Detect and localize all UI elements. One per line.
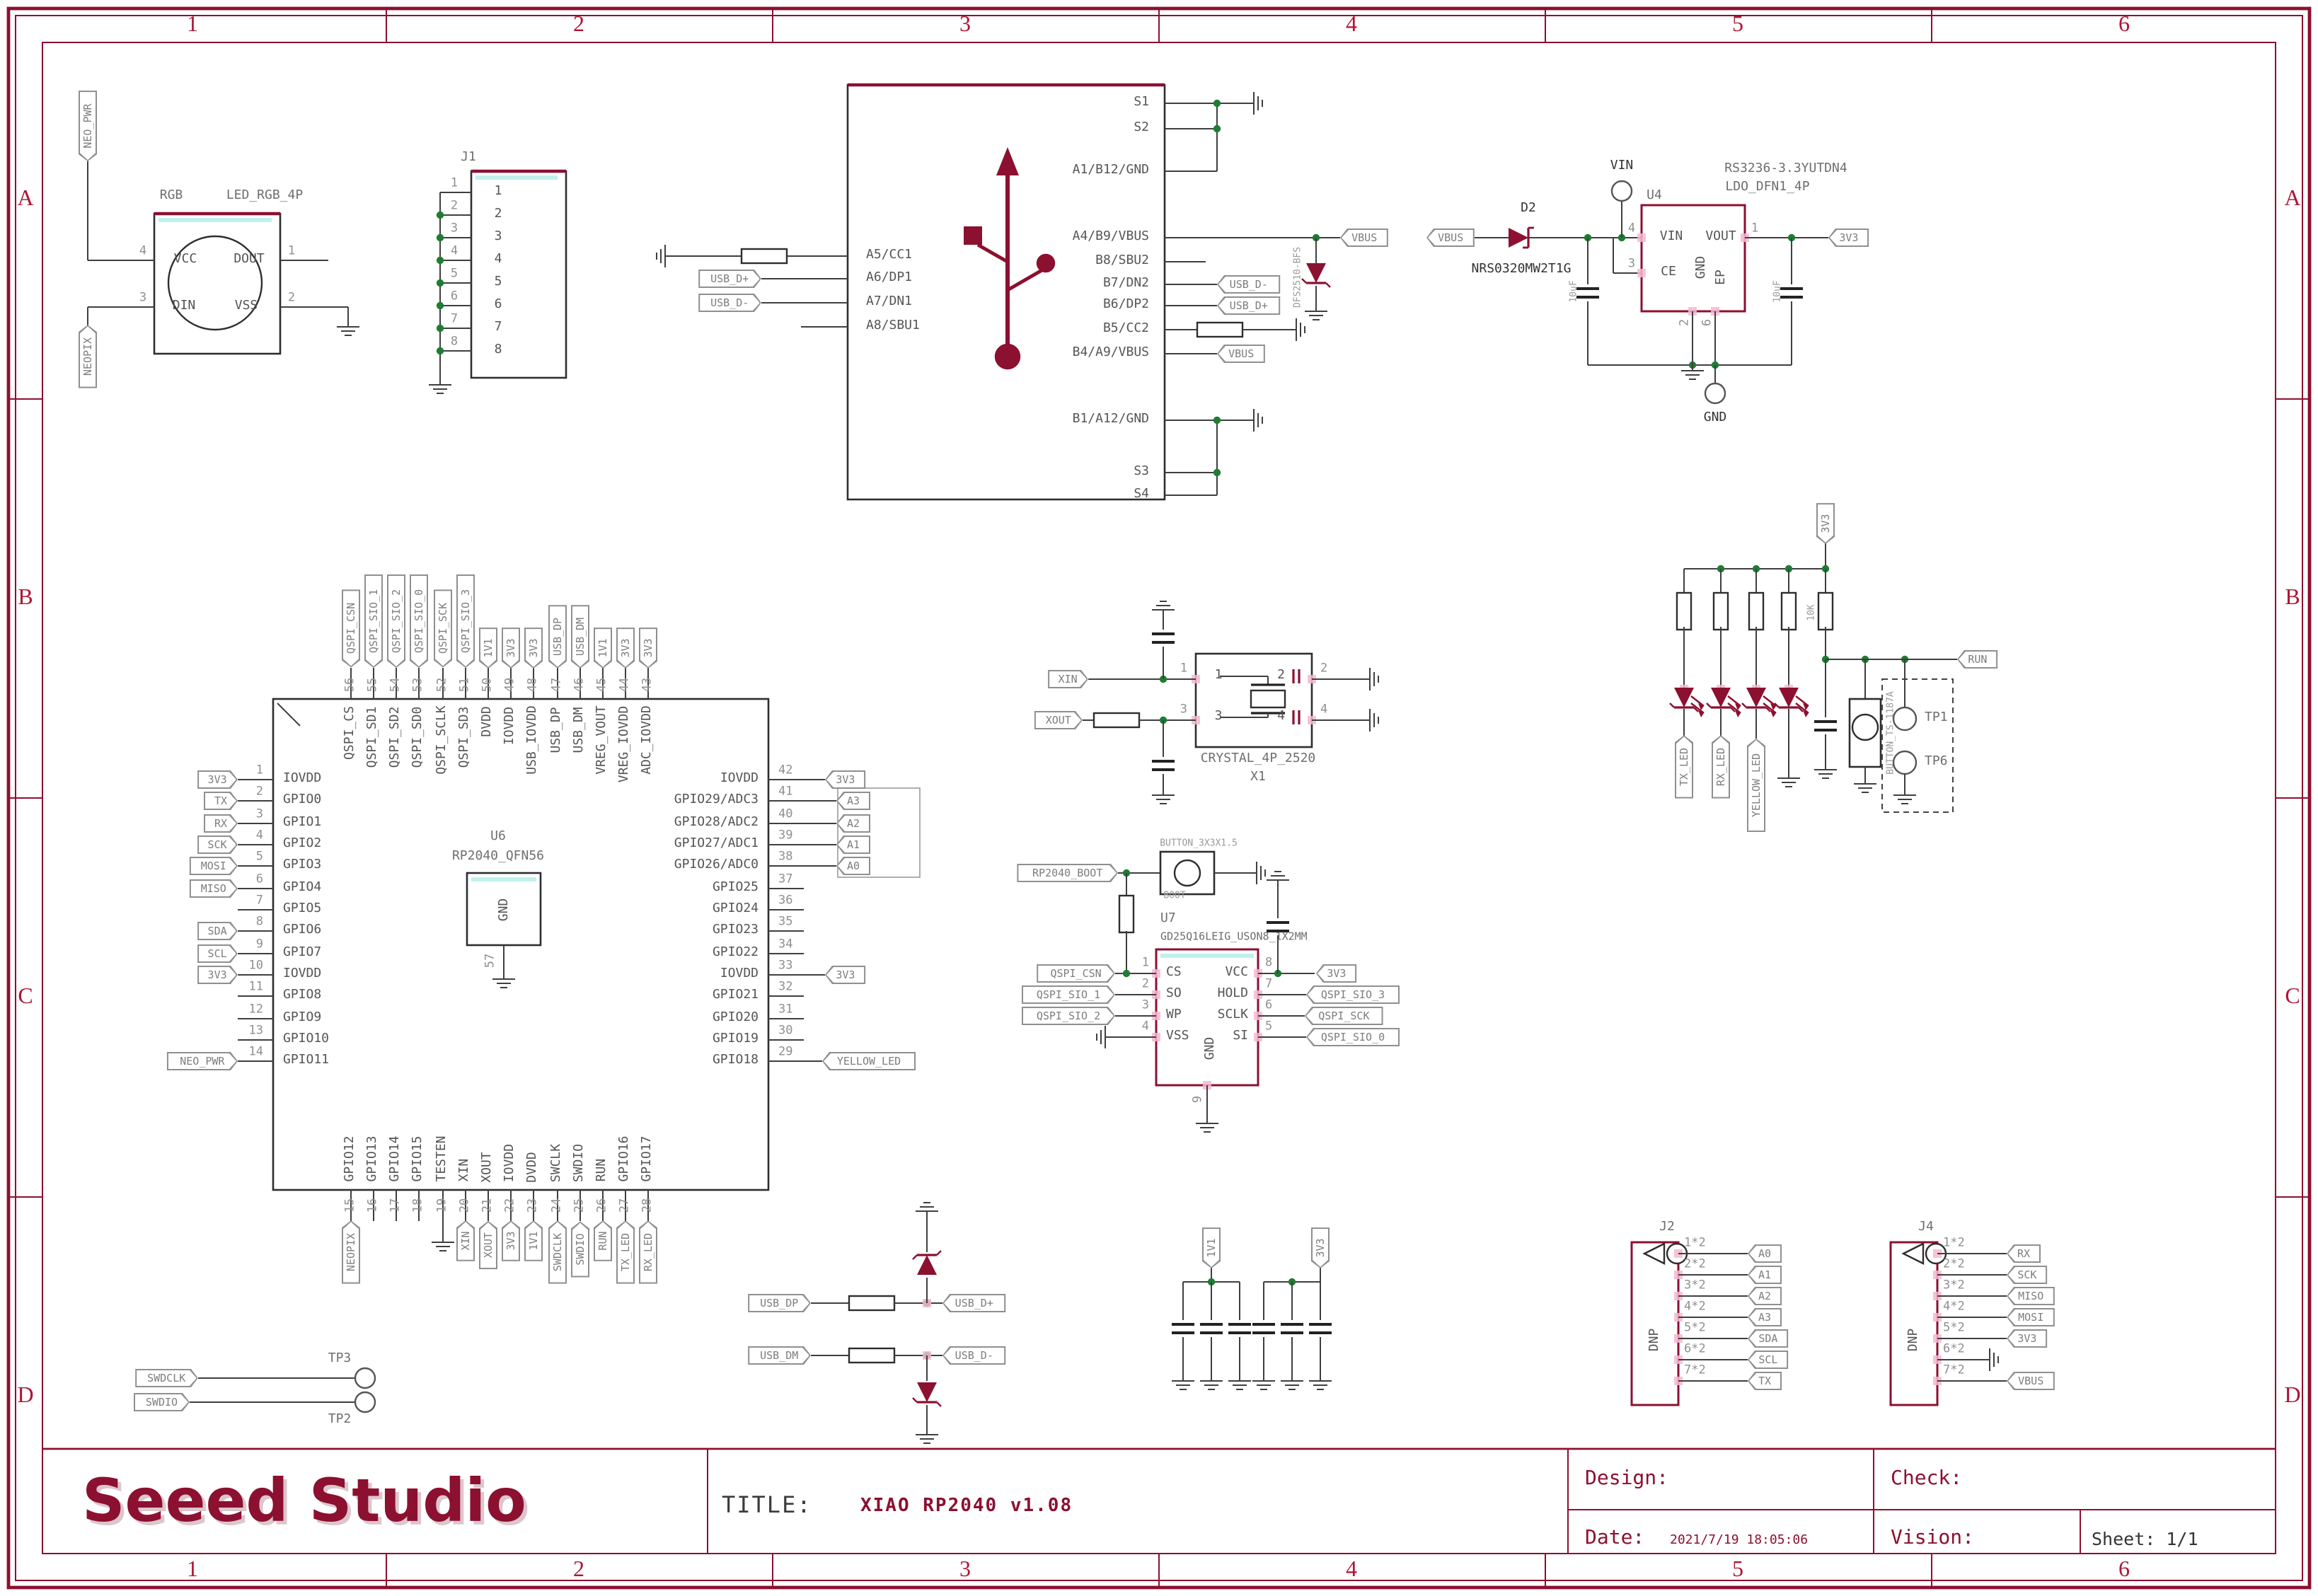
net-flag-YELLOW_LED: YELLOW_LED — [822, 1052, 916, 1070]
text-label: 37 — [778, 874, 793, 886]
text-label: 1 — [1142, 958, 1149, 970]
net-flag-SWDCLK: SWDCLK — [134, 1369, 198, 1387]
text-label: GPIO28/ADC2 — [674, 817, 759, 830]
text-label: WP — [1166, 1010, 1182, 1022]
text-label: 8 — [256, 917, 263, 929]
text-label: 12 — [249, 1005, 264, 1017]
net-flag-SCK: SCK — [2007, 1266, 2048, 1284]
cap-out-value: 10uF — [1773, 280, 1782, 302]
usb-pin-A8/SBU1: A8/SBU1 — [866, 320, 920, 333]
refdes-j2: J2 — [1659, 1222, 1675, 1234]
text-label: 4*2 — [1943, 1302, 1965, 1314]
component-body — [1818, 593, 1833, 630]
refdes-u4: U4 — [1647, 190, 1662, 203]
circle-symbol — [355, 1392, 375, 1412]
text-label: 36 — [778, 896, 793, 908]
net-flag-SWDIO: SWDIO — [571, 1221, 589, 1277]
usb-pin-A4/B9/VBUS: A4/B9/VBUS — [1073, 231, 1149, 244]
circle-symbol — [1893, 751, 1916, 774]
schematic-sheet: RGBLED_RGB_4PVCCDOUTDINVSS4312NEO_PWRNEO… — [0, 0, 2318, 1596]
grid-col-5-bottom: 5 — [1732, 1558, 1743, 1583]
component-body — [1677, 593, 1691, 630]
j1-pin-name: 8 — [495, 345, 502, 357]
text-label: 4*2 — [1684, 1302, 1706, 1314]
text-label: GPIO26/ADC0 — [674, 860, 759, 872]
text-label: GPIO15 — [413, 1136, 425, 1182]
grid-col-6-bottom: 6 — [2118, 1558, 2130, 1583]
poly-symbol — [1644, 1244, 1664, 1263]
net-flag-1V1: 1V1 — [594, 627, 612, 668]
net-flag-VBUS: VBUS — [1340, 229, 1388, 247]
text-label: XOUT — [482, 1152, 495, 1182]
text-label: HOLD — [1218, 988, 1248, 1001]
net-flag-MISO: MISO — [190, 879, 238, 898]
text-label: 3 — [256, 809, 263, 821]
text-label: 17 — [391, 1198, 403, 1213]
usb-pin-B8/SBU2: B8/SBU2 — [1095, 255, 1149, 268]
component-body — [1714, 593, 1728, 630]
circle-symbol — [168, 236, 262, 330]
net-flag-1V1: 1V1 — [479, 627, 497, 668]
text-label: 20 — [460, 1198, 472, 1213]
tvs-part: DFS2510-BFS — [1293, 247, 1303, 308]
usb-pin-S1: S1 — [1134, 97, 1149, 110]
net-flag-3V3: 3V3 — [1316, 964, 1357, 983]
net-flag-VBUS: VBUS — [1217, 345, 1265, 363]
text-label: 6 — [1265, 1000, 1272, 1012]
text-label: 7 — [1265, 979, 1272, 991]
text-label: GPIO18 — [713, 1055, 759, 1068]
usb-pin-B6/DP2: B6/DP2 — [1103, 299, 1149, 312]
text-label: 6 — [1702, 319, 1714, 326]
tp6-label: TP6 — [1925, 756, 1948, 769]
j1-pin-num: 8 — [451, 337, 458, 349]
net-flag-1V1: 1V1 — [524, 1221, 543, 1262]
net-flag-USB_DM: USB_DM — [747, 1346, 811, 1365]
text-label: 46 — [575, 678, 587, 693]
component-body — [1094, 713, 1139, 727]
net-flag-USB_D-: USB_D- — [1217, 275, 1281, 294]
text-label: 5*2 — [1943, 1323, 1965, 1335]
text-label: 2 — [1142, 979, 1149, 991]
text-label: 4 — [139, 246, 146, 258]
j1-pin-num: 3 — [451, 224, 458, 236]
check-label: Check: — [1891, 1467, 1962, 1490]
text-label: GPIO20 — [713, 1012, 759, 1025]
text-label: ADC_IOVDD — [642, 706, 655, 775]
vendor-logo: Seeed Studio — [82, 1466, 526, 1535]
text-label: 6*2 — [1943, 1344, 1965, 1356]
text-label: 4 — [1320, 705, 1327, 717]
junction-dot — [437, 302, 444, 309]
text-label: 9 — [1193, 1096, 1205, 1103]
text-label: TESTEN — [437, 1136, 449, 1182]
boot-label: BOOT — [1163, 891, 1185, 901]
net-flag-3V3: 3V3 — [1828, 229, 1869, 247]
text-label: 1 — [256, 765, 263, 777]
net-flag-3V3: 3V3 — [502, 1221, 520, 1262]
text-label: GPIO11 — [283, 1055, 329, 1068]
text-label: 52 — [437, 678, 449, 693]
text-label: RUN — [596, 1159, 609, 1182]
circle-symbol — [1037, 255, 1054, 272]
usb-pin-S4: S4 — [1134, 489, 1149, 502]
text-label: 39 — [778, 831, 793, 843]
text-label: 1*2 — [1943, 1238, 1965, 1250]
text-label: 53 — [413, 678, 425, 693]
text-label: 43 — [642, 678, 655, 693]
text-label: 1 — [1180, 664, 1187, 676]
net-flag-XOUT: XOUT — [1034, 711, 1083, 729]
poly-symbol — [1746, 688, 1766, 707]
text-label: IOVDD — [283, 968, 321, 981]
text-label: QSPI_CS — [345, 706, 357, 760]
text-label: EP — [1716, 270, 1729, 285]
text-label: 3 — [1180, 705, 1187, 717]
circle-symbol — [1705, 383, 1725, 403]
circle-symbol — [996, 345, 1020, 369]
usb-pin-B4/A9/VBUS: B4/A9/VBUS — [1073, 347, 1149, 360]
junction-dot — [437, 325, 444, 332]
date-value: 2021/7/19 18:05:06 — [1670, 1534, 1808, 1548]
net-flag-A0: A0 — [836, 857, 870, 875]
refdes-x1: X1 — [1250, 772, 1266, 785]
text-label: 16 — [368, 1198, 380, 1213]
net-flag-MOSI: MOSI — [2007, 1308, 2055, 1326]
net-flag-QSPI_SIO_0: QSPI_SIO_0 — [1306, 1028, 1400, 1046]
text-label: GPIO22 — [713, 947, 759, 960]
poly-symbol — [1903, 1244, 1923, 1263]
circle-symbol — [1852, 715, 1878, 740]
part-u7: GD25Q16LEIG_USON8_1X2MM — [1160, 932, 1308, 942]
net-flag-NEO_PWR: NEO_PWR — [79, 91, 97, 161]
usb-pin-S3: S3 — [1134, 466, 1149, 479]
date-label: Date: — [1585, 1527, 1644, 1549]
text-label: CS — [1166, 967, 1182, 980]
text-label: GPIO0 — [283, 794, 321, 807]
net-flag-USB_D-: USB_D- — [942, 1346, 1006, 1365]
text-label: SI — [1233, 1031, 1248, 1043]
net-flag-SCL: SCL — [1748, 1351, 1789, 1369]
text-label: 3*2 — [1684, 1280, 1706, 1293]
sheet-number: Sheet: 1/1 — [2092, 1528, 2198, 1549]
tp2-label: TP2 — [328, 1414, 352, 1427]
text-label: VCC — [174, 254, 197, 267]
text-label: 45 — [597, 678, 609, 693]
j1-pin-name: 6 — [495, 299, 502, 312]
text-label: 3 — [1142, 1000, 1149, 1012]
net-flag-RUN: RUN — [594, 1221, 612, 1262]
text-label: 35 — [778, 917, 793, 929]
net-flag-3V3: 3V3 — [616, 627, 635, 668]
text-label: 14 — [249, 1047, 264, 1059]
text-label: GPIO4 — [283, 882, 321, 895]
refdes-d2: D2 — [1521, 203, 1536, 216]
text-label: 15 — [345, 1198, 357, 1213]
text-label: 4 — [1277, 711, 1285, 724]
net-flag-3V3: 3V3 — [1311, 1227, 1330, 1268]
net-flag-TX: TX — [204, 792, 238, 810]
circle-symbol — [1175, 860, 1200, 886]
poly-symbol — [1509, 228, 1528, 248]
text-label: 31 — [778, 1005, 793, 1017]
component-body — [849, 1348, 894, 1363]
j1-pin-name: 3 — [495, 231, 502, 244]
text-label: 1 — [288, 246, 295, 258]
text-label: GPIO8 — [283, 990, 321, 1002]
net-flag-MOSI: MOSI — [190, 857, 238, 875]
net-flag-USB_D+: USB_D+ — [698, 270, 761, 288]
net-flag-TX_LED: TX_LED — [1675, 736, 1693, 799]
grid-col-3-bottom: 3 — [959, 1558, 971, 1583]
junction-dot — [1213, 100, 1221, 107]
wire — [913, 1255, 917, 1259]
j1-pin-name: 7 — [495, 322, 502, 335]
wire — [937, 1402, 941, 1406]
text-label: QSPI_SCLK — [437, 706, 449, 775]
net-flag-3V3: 3V3 — [197, 966, 238, 984]
text-label: GPIO10 — [283, 1034, 329, 1046]
j1-pin-num: 2 — [451, 201, 458, 213]
net-flag-VBUS: VBUS — [1426, 229, 1475, 247]
text-label: 21 — [483, 1198, 495, 1213]
text-label: 3 — [1628, 259, 1635, 271]
text-label: QSPI_SD2 — [390, 706, 403, 768]
text-label: 25 — [575, 1198, 587, 1213]
net-flag-RX: RX — [204, 814, 238, 833]
component-body — [471, 171, 566, 378]
net-flag-3V3: 3V3 — [502, 627, 520, 668]
net-flag-QSPI_SCK: QSPI_SCK — [1305, 1007, 1383, 1025]
text-label: 2 — [1320, 664, 1327, 676]
component-body — [849, 1296, 894, 1310]
dnp-j4: DNP — [1908, 1329, 1921, 1352]
poly-symbol — [1674, 688, 1694, 707]
text-label: 41 — [778, 787, 793, 799]
poly-symbol — [1779, 688, 1799, 707]
text-label: 4 — [1142, 1022, 1149, 1034]
text-label: DIN — [173, 301, 196, 313]
wire — [277, 703, 300, 726]
text-label: GND — [1205, 1037, 1218, 1060]
net-flag-TX: TX — [1748, 1372, 1782, 1390]
component-body — [1119, 896, 1134, 932]
text-label: GPIO23 — [713, 925, 759, 937]
net-flag-QSPI_SIO_1: QSPI_SIO_1 — [1022, 985, 1115, 1004]
net-flag-NEO_PWR: NEO_PWR — [167, 1052, 238, 1070]
text-label: 44 — [620, 678, 632, 693]
net-flag-3V3: 3V3 — [2007, 1329, 2048, 1348]
usb-pin-A6/DP1: A6/DP1 — [866, 272, 912, 285]
text-label: GPIO24 — [713, 903, 759, 916]
text-label: GPIO16 — [619, 1136, 632, 1182]
wire — [1707, 703, 1711, 707]
port-vin: VIN — [1610, 161, 1634, 173]
poly-symbol — [996, 147, 1019, 175]
grid-row-C-left: C — [18, 985, 33, 1010]
component-body — [1642, 205, 1745, 311]
grid-col-3-top: 3 — [959, 13, 971, 38]
j1-pin-name: 4 — [495, 254, 502, 267]
j1-pin-num: 1 — [451, 178, 458, 190]
j1-pin-num: 4 — [451, 246, 458, 258]
grid-row-C-right: C — [2285, 985, 2300, 1010]
wire — [913, 1398, 917, 1402]
text-label: QSPI_SD1 — [367, 706, 380, 768]
text-label: VSS — [1166, 1031, 1189, 1043]
component-body — [1782, 593, 1796, 630]
text-label: 29 — [778, 1047, 793, 1059]
text-label: 3 — [139, 293, 146, 305]
poly-symbol — [917, 1255, 937, 1275]
text-label: VSS — [235, 301, 258, 313]
j1-pin-name: 5 — [495, 277, 502, 289]
wire — [978, 245, 1008, 262]
text-label: 32 — [778, 982, 793, 994]
net-flag-MISO: MISO — [2007, 1287, 2055, 1305]
net-flag-QSPI_SIO_0: QSPI_SIO_0 — [410, 574, 428, 668]
usb-pin-S2: S2 — [1134, 122, 1149, 135]
text-label: 1*2 — [1684, 1238, 1706, 1250]
net-flag-3V3: 3V3 — [825, 770, 866, 789]
wire — [1742, 703, 1746, 707]
part-rgb: LED_RGB_4P — [226, 190, 303, 203]
grid-col-5-top: 5 — [1732, 13, 1743, 38]
junction-dot — [437, 347, 444, 354]
net-flag-SWDIO: SWDIO — [134, 1393, 190, 1411]
net-flag-SCK: SCK — [197, 835, 238, 854]
text-label: IOVDD — [283, 773, 321, 786]
usb-pin-A1/B12/GND: A1/B12/GND — [1073, 165, 1149, 178]
grid-col-1-bottom: 1 — [187, 1558, 198, 1583]
part2-u4: LDO_DFN1_4P — [1725, 182, 1809, 195]
text-label: 2*2 — [1684, 1259, 1706, 1271]
cap-in-value: 10uF — [1569, 280, 1579, 302]
pad-highlight — [1637, 269, 1646, 277]
j1-pin-num: 7 — [451, 314, 458, 326]
text-label: 2 — [1680, 319, 1692, 326]
text-label: 13 — [249, 1026, 264, 1038]
text-label: VIN — [1660, 231, 1683, 244]
text-label: 38 — [778, 852, 793, 864]
text-label: GPIO3 — [283, 860, 321, 872]
circle-symbol — [1893, 707, 1916, 730]
text-label: 2 — [288, 293, 295, 305]
grid-col-4-top: 4 — [1346, 13, 1357, 38]
text-label: USB_IOVDD — [527, 706, 540, 775]
text-label: 5 — [1265, 1022, 1272, 1034]
vision-label: Vision: — [1891, 1527, 1974, 1549]
component-body — [1749, 593, 1763, 630]
text-label: 23 — [528, 1198, 540, 1213]
net-flag-QSPI_SIO_3: QSPI_SIO_3 — [456, 574, 475, 668]
refdes-j4: J4 — [1918, 1222, 1934, 1234]
net-flag-QSPI_CSN: QSPI_CSN — [342, 589, 360, 668]
part-u6: RP2040_QFN56 — [452, 851, 544, 864]
text-label: GPIO12 — [345, 1136, 357, 1182]
net-flag-VBUS: VBUS — [2007, 1372, 2055, 1390]
net-flag-QSPI_CSN: QSPI_CSN — [1037, 964, 1115, 983]
junction-dot — [1213, 469, 1221, 476]
net-flag-SDA: SDA — [197, 922, 238, 940]
text-label: 28 — [642, 1198, 655, 1213]
net-flag-3V3: 3V3 — [1816, 502, 1835, 543]
usb-pin-B1/A12/GND: B1/A12/GND — [1073, 414, 1149, 427]
grid-col-4-bottom: 4 — [1346, 1558, 1357, 1583]
text-label: 1 — [1751, 224, 1758, 236]
grid-col-2-top: 2 — [573, 13, 584, 38]
net-flag-A3: A3 — [836, 792, 870, 810]
usb-pin-B5/CC2: B5/CC2 — [1103, 323, 1149, 336]
net-flag-RX: RX — [2007, 1244, 2041, 1263]
text-label: 51 — [460, 678, 472, 693]
net-flag-3V3: 3V3 — [524, 627, 543, 668]
text-label: GPIO5 — [283, 903, 321, 916]
net-flag-A3: A3 — [1748, 1308, 1782, 1326]
wire — [937, 1251, 941, 1255]
junction-dot — [437, 257, 444, 264]
net-flag-QSPI_SIO_1: QSPI_SIO_1 — [364, 574, 383, 668]
net-flag-USB_D+: USB_D+ — [1217, 296, 1281, 315]
net-flag-USB_D-: USB_D- — [698, 294, 761, 312]
net-flag-QSPI_SCK: QSPI_SCK — [434, 589, 452, 668]
text-label: 9 — [256, 939, 263, 952]
text-label: IOVDD — [720, 968, 759, 981]
text-label: GPIO21 — [713, 990, 759, 1002]
text-label: VREG_IOVDD — [619, 706, 632, 782]
text-label: 5*2 — [1684, 1323, 1706, 1335]
text-label: 3 — [1215, 711, 1223, 724]
net-flag-3V3: 3V3 — [639, 627, 657, 668]
poly-symbol — [1711, 688, 1731, 707]
circle-symbol — [1612, 181, 1632, 201]
text-label: SWDIO — [574, 1144, 587, 1182]
net-flag-SDA: SDA — [1748, 1329, 1789, 1348]
net-flag-XIN: XIN — [456, 1221, 475, 1262]
text-label: 7*2 — [1684, 1365, 1706, 1377]
net-flag-QSPI_SIO_3: QSPI_SIO_3 — [1306, 985, 1400, 1004]
text-label: VREG_VOUT — [596, 706, 609, 775]
net-flag-3V3: 3V3 — [197, 770, 238, 789]
text-label: 50 — [483, 678, 495, 693]
net-flag-NEOPIX: NEOPIX — [79, 325, 97, 389]
junction-dot — [437, 212, 444, 219]
wire — [1670, 703, 1674, 707]
net-flag-QSPI_SIO_2: QSPI_SIO_2 — [1022, 1007, 1115, 1025]
usb-pin-A5/CC1: A5/CC1 — [866, 250, 912, 262]
text-label: GND — [1696, 256, 1709, 279]
component-body — [1251, 690, 1285, 707]
text-label: GPIO14 — [390, 1136, 403, 1182]
text-label: SCLK — [1218, 1010, 1248, 1022]
text-label: 47 — [552, 678, 564, 693]
usb-pin-B7/DN2: B7/DN2 — [1103, 278, 1149, 291]
net-flag-TX_LED: TX_LED — [616, 1221, 635, 1285]
text-label: VOUT — [1705, 231, 1736, 244]
poly-symbol — [1306, 263, 1326, 283]
text-label: SO — [1166, 988, 1182, 1001]
text-label: GPIO9 — [283, 1012, 321, 1025]
text-label: 27 — [620, 1198, 632, 1213]
text-label: SWCLK — [551, 1144, 564, 1182]
grid-col-2-bottom: 2 — [573, 1558, 584, 1583]
text-label: 33 — [778, 961, 793, 973]
text-label: GPIO6 — [283, 925, 321, 937]
text-label: GPIO13 — [367, 1136, 380, 1182]
junction-dot — [1213, 417, 1221, 424]
net-flag-RX_LED: RX_LED — [639, 1221, 657, 1285]
text-label: 6*2 — [1684, 1344, 1706, 1356]
